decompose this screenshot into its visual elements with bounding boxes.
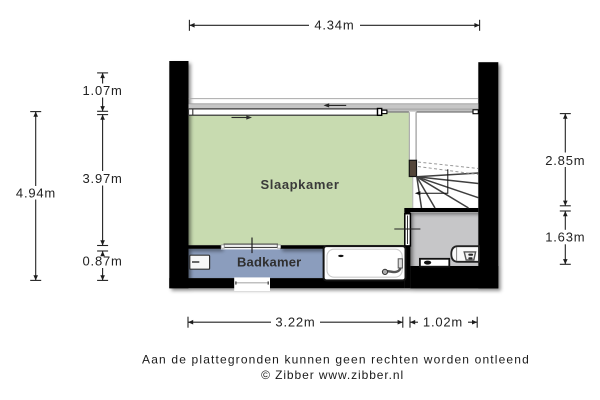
svg-text:Badkamer: Badkamer: [237, 255, 301, 270]
svg-text:1.07m: 1.07m: [83, 83, 123, 98]
svg-text:© Zibber www.zibber.nl: © Zibber www.zibber.nl: [261, 368, 404, 382]
svg-text:3.22m: 3.22m: [275, 315, 315, 330]
svg-text:0.87m: 0.87m: [83, 253, 123, 268]
svg-text:2.85m: 2.85m: [545, 153, 585, 168]
svg-text:3.97m: 3.97m: [83, 171, 123, 186]
svg-text:4.94m: 4.94m: [16, 185, 56, 200]
svg-text:4.34m: 4.34m: [314, 17, 354, 32]
svg-text:1.02m: 1.02m: [423, 315, 463, 330]
svg-text:1.63m: 1.63m: [545, 230, 585, 245]
svg-text:Slaapkamer: Slaapkamer: [261, 177, 340, 192]
svg-text:Aan de plattegronden kunnen ge: Aan de plattegronden kunnen geen rechten…: [142, 352, 530, 366]
